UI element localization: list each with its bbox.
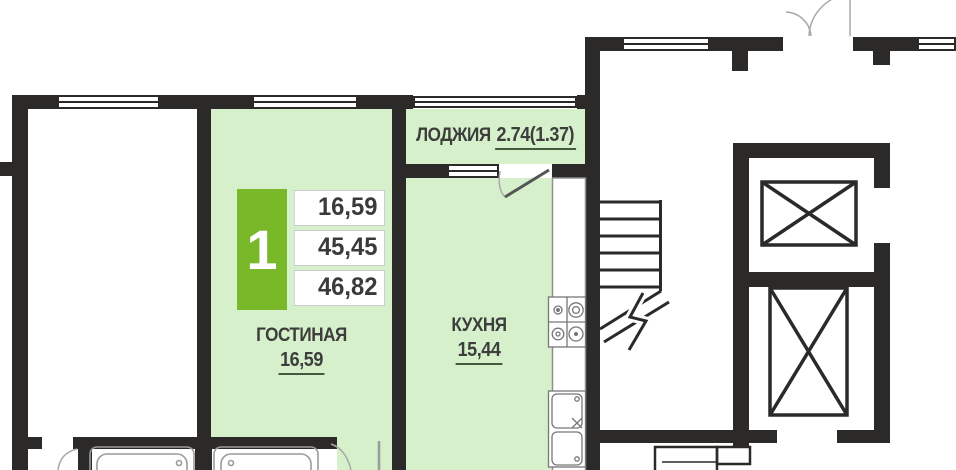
fixtures-layer (0, 0, 956, 470)
floor-plan-canvas: 1 16,59 45,45 46,82 ЛОДЖИЯ 2.74(1.37) ГО… (0, 0, 956, 470)
balcony-door-swing (499, 170, 549, 197)
door-arc-bathroom (58, 449, 77, 470)
kitchen-area-value: 15,44 (456, 339, 502, 365)
elevator-shaft-1 (762, 182, 856, 245)
entrance-door-swing (786, 0, 851, 36)
sink (549, 391, 586, 467)
door-living-bottom (331, 441, 379, 470)
area-row-total: 46,82 (294, 270, 385, 306)
elevator-shaft-2 (770, 288, 847, 415)
unit-number: 1 (237, 189, 287, 310)
loggia-label: ЛОДЖИЯ 2.74(1.37) (415, 124, 577, 150)
stairs (600, 200, 669, 350)
vestibule-fixtures (655, 447, 750, 470)
kitchen-label: КУХНЯ 15,44 (413, 315, 544, 365)
living-room-label: ГОСТИНАЯ 16,59 (220, 325, 383, 375)
loggia-name: ЛОДЖИЯ (416, 125, 491, 146)
area-row-living: 16,59 (294, 190, 385, 226)
living-room-area-value: 16,59 (278, 349, 324, 375)
bathtub-1 (90, 447, 194, 470)
unit-area-rows: 16,59 45,45 46,82 (289, 190, 385, 310)
area-row-useful: 45,45 (294, 230, 385, 266)
bathtub-2 (214, 447, 318, 470)
unit-badge: 1 16,59 45,45 46,82 (237, 189, 385, 310)
stove (549, 297, 586, 347)
loggia-area-value: 2.74(1.37) (495, 124, 576, 150)
living-room-name: ГОСТИНАЯ (220, 325, 383, 347)
kitchen-name: КУХНЯ (413, 315, 544, 337)
